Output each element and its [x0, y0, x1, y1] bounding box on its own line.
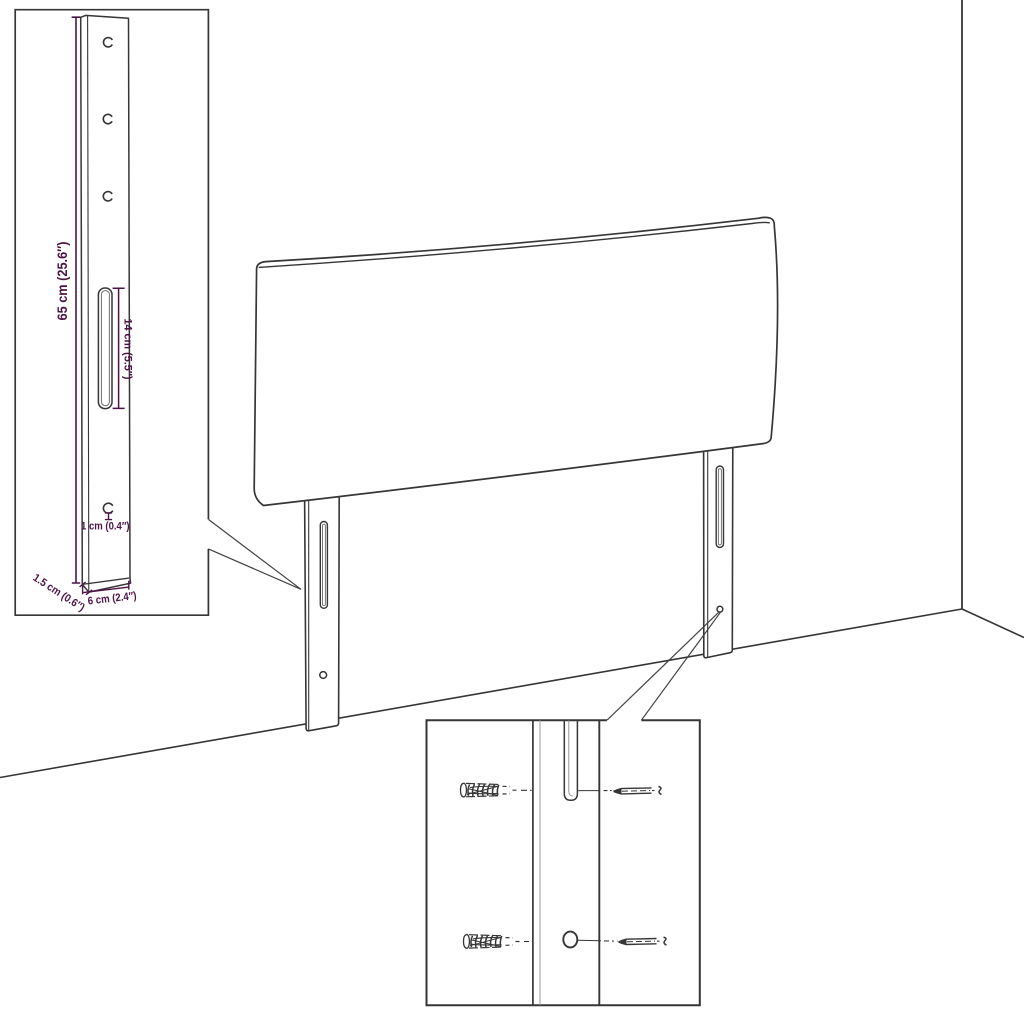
- svg-text:14 cm (5.5″): 14 cm (5.5″): [121, 319, 133, 380]
- svg-text:1 cm (0.4″): 1 cm (0.4″): [81, 520, 130, 532]
- svg-text:65 cm (25.6″): 65 cm (25.6″): [55, 242, 70, 321]
